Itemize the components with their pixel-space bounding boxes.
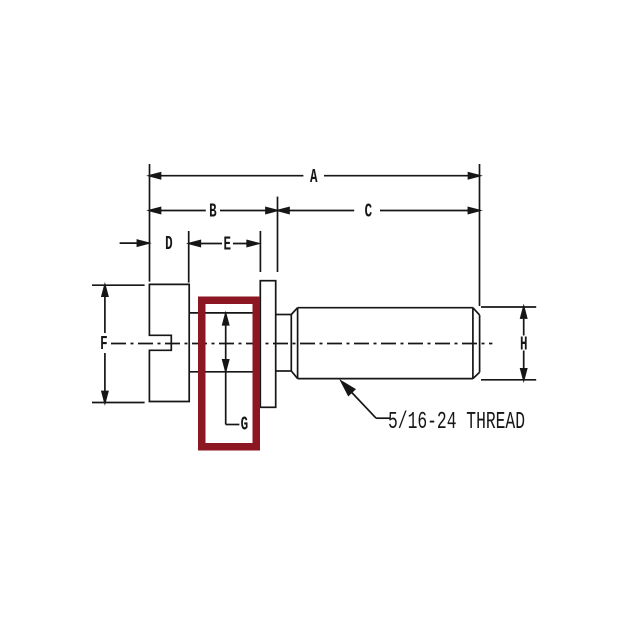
- svg-text:D: D: [165, 233, 173, 255]
- svg-text:B: B: [209, 201, 217, 223]
- svg-text:5/16-24 THREAD: 5/16-24 THREAD: [388, 409, 525, 436]
- svg-text:F: F: [100, 333, 108, 355]
- svg-text:H: H: [520, 333, 528, 355]
- svg-text:A: A: [310, 166, 318, 188]
- svg-text:C: C: [365, 201, 373, 223]
- svg-text:G: G: [241, 414, 249, 436]
- svg-text:E: E: [223, 234, 231, 256]
